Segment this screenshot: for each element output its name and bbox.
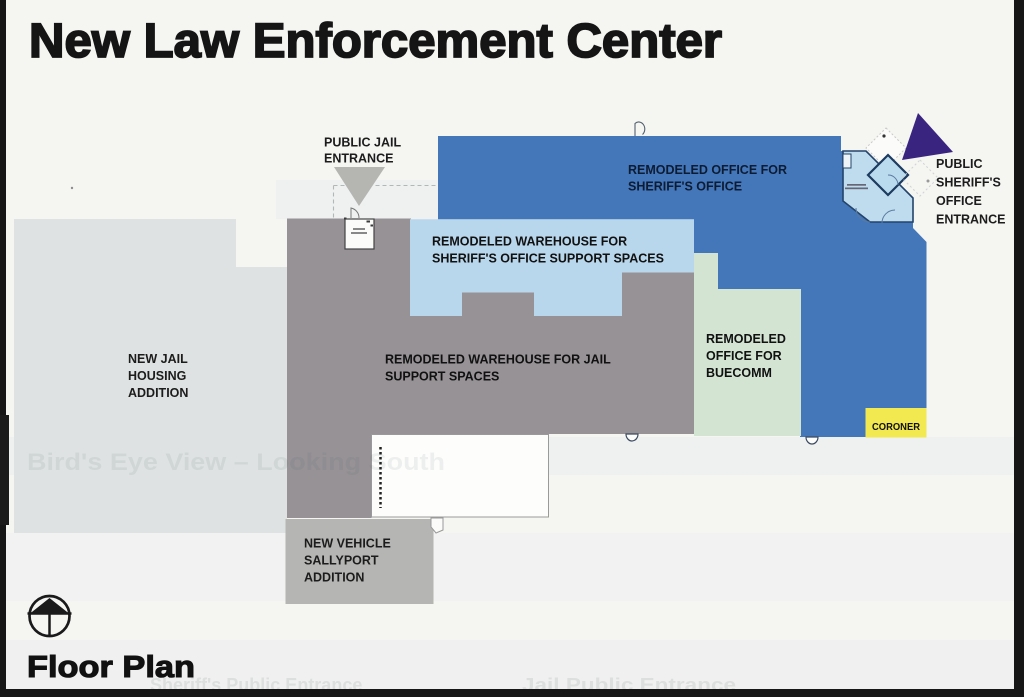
svg-text:PUBLIC: PUBLIC xyxy=(936,157,983,171)
svg-text:SHERIFF'S: SHERIFF'S xyxy=(936,176,1001,190)
svg-text:SHERIFF'S OFFICE: SHERIFF'S OFFICE xyxy=(628,180,742,194)
svg-text:BUECOMM: BUECOMM xyxy=(706,366,772,380)
svg-text:ENTRANCE: ENTRANCE xyxy=(324,152,393,166)
svg-text:HOUSING: HOUSING xyxy=(128,369,186,383)
svg-text:New Law Enforcement Center: New Law Enforcement Center xyxy=(29,15,722,68)
svg-text:REMODELED WAREHOUSE FOR: REMODELED WAREHOUSE FOR xyxy=(432,235,627,249)
svg-text:REMODELED: REMODELED xyxy=(706,332,786,346)
svg-text:OFFICE FOR: OFFICE FOR xyxy=(706,349,782,363)
svg-text:REMODELED OFFICE FOR: REMODELED OFFICE FOR xyxy=(628,163,787,177)
svg-text:CORONER: CORONER xyxy=(872,421,920,433)
svg-text:OFFICE: OFFICE xyxy=(936,194,982,208)
svg-text:ENTRANCE: ENTRANCE xyxy=(936,213,1005,227)
svg-text:SALLYPORT: SALLYPORT xyxy=(304,554,379,568)
svg-text:NEW VEHICLE: NEW VEHICLE xyxy=(304,537,391,551)
svg-text:ADDITION: ADDITION xyxy=(304,571,364,585)
svg-text:Bird's Eye View – Looking Sout: Bird's Eye View – Looking South xyxy=(27,449,445,476)
svg-text:REMODELED WAREHOUSE FOR JAIL: REMODELED WAREHOUSE FOR JAIL xyxy=(385,353,611,367)
svg-text:Floor Plan: Floor Plan xyxy=(27,650,195,684)
svg-text:NEW JAIL: NEW JAIL xyxy=(128,352,188,366)
svg-text:ADDITION: ADDITION xyxy=(128,386,188,400)
svg-text:SUPPORT SPACES: SUPPORT SPACES xyxy=(385,370,499,384)
svg-text:PUBLIC JAIL: PUBLIC JAIL xyxy=(324,136,401,150)
svg-text:SHERIFF'S OFFICE SUPPORT SPACE: SHERIFF'S OFFICE SUPPORT SPACES xyxy=(432,252,664,266)
